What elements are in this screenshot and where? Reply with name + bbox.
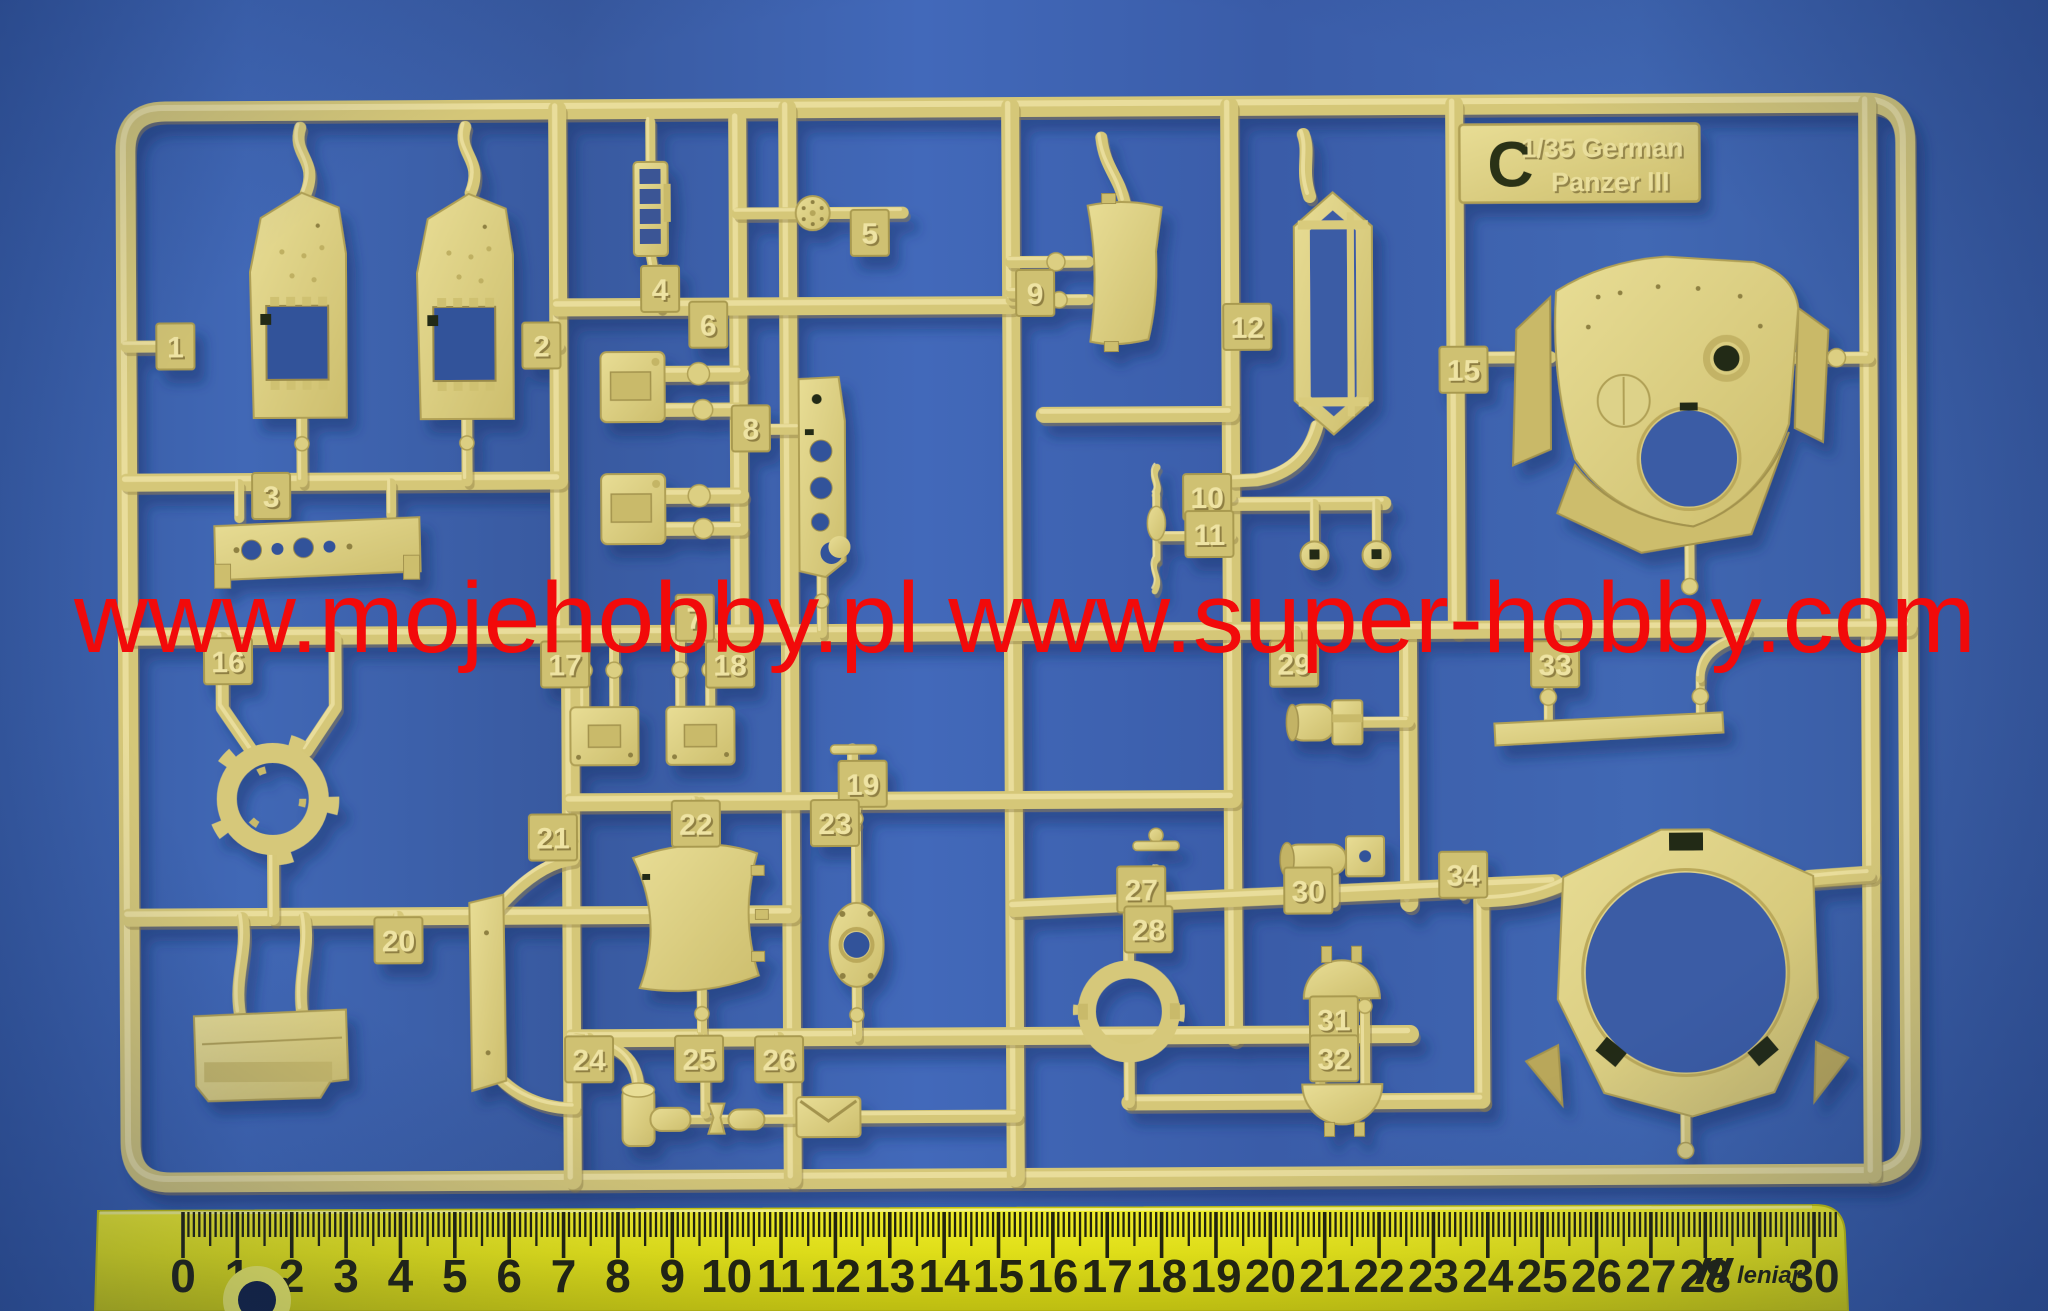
- svg-text:20: 20: [382, 925, 416, 958]
- svg-text:8: 8: [742, 413, 759, 446]
- part-5-disc: [796, 196, 830, 230]
- part-18-box: [666, 707, 734, 765]
- part-12-frame: [1294, 192, 1373, 434]
- part-tag-11: 1111: [1185, 511, 1233, 557]
- part-7-plate: [799, 377, 851, 577]
- svg-text:11: 11: [757, 1250, 806, 1302]
- svg-text:5: 5: [861, 218, 878, 251]
- svg-text:19: 19: [846, 769, 880, 802]
- svg-text:19: 19: [1190, 1250, 1241, 1302]
- part-21-bracket: [469, 895, 506, 1091]
- svg-text:24: 24: [1462, 1250, 1514, 1302]
- svg-text:24: 24: [572, 1044, 606, 1077]
- svg-text:10: 10: [701, 1250, 752, 1302]
- svg-text:6: 6: [496, 1250, 522, 1302]
- svg-text:3: 3: [263, 481, 280, 514]
- svg-text:5: 5: [442, 1250, 468, 1302]
- part-22-shield: [633, 844, 769, 991]
- svg-text:15: 15: [1447, 355, 1481, 388]
- svg-text:8: 8: [605, 1250, 631, 1302]
- svg-text:23: 23: [1408, 1250, 1459, 1302]
- part-29-cylinder: [1286, 700, 1362, 744]
- svg-text:14: 14: [919, 1250, 971, 1302]
- part-tag-1: 11: [156, 323, 194, 369]
- part-23-mount: [829, 903, 883, 987]
- part-17-box: [570, 707, 638, 765]
- part-tag-2: 22: [522, 322, 560, 368]
- svg-text:15: 15: [973, 1250, 1024, 1302]
- part-tag-28: 2828: [1124, 906, 1172, 952]
- part-fender-right: [417, 194, 514, 419]
- svg-text:27: 27: [1124, 874, 1158, 907]
- part-tag-15: 1515: [1439, 347, 1487, 393]
- svg-text:4: 4: [652, 274, 669, 307]
- svg-text:7: 7: [551, 1250, 577, 1302]
- kit-label-line1: 1/35 German: [1521, 133, 1683, 164]
- svg-text:16: 16: [1027, 1250, 1078, 1302]
- part-tag-21: 2121: [529, 814, 577, 860]
- part-tag-9: 99: [1016, 270, 1054, 316]
- part-tag-8: 88: [732, 405, 770, 451]
- part-tag-23: 2323: [811, 800, 859, 846]
- part-tag-5: 55: [851, 210, 889, 256]
- part-20-base: [194, 1010, 348, 1102]
- svg-text:9: 9: [1027, 278, 1044, 311]
- part-tag-34: 3434: [1439, 852, 1487, 898]
- svg-text:18: 18: [1136, 1250, 1187, 1302]
- svg-text:26: 26: [1571, 1250, 1622, 1302]
- svg-text:20: 20: [1245, 1250, 1296, 1302]
- part-tag-4: 44: [641, 266, 679, 312]
- part-9-curved-plate: [1088, 193, 1163, 351]
- part-6-box: [600, 352, 664, 422]
- svg-text:22: 22: [1353, 1250, 1404, 1302]
- part-tag-6: 66: [689, 302, 727, 348]
- svg-text:9: 9: [660, 1250, 686, 1302]
- part-tag-24: 2424: [565, 1036, 613, 1082]
- sprue-photo: C 1/35 German 1/35 German Panzer III Pan…: [0, 0, 2048, 1311]
- svg-text:11: 11: [1193, 519, 1225, 552]
- svg-text:31: 31: [1317, 1004, 1351, 1037]
- part-fender-left: [250, 193, 347, 418]
- svg-text:34: 34: [1446, 860, 1480, 893]
- part-10-11-antenna: [1147, 506, 1165, 540]
- part-tag-32: 3232: [1310, 1035, 1358, 1081]
- svg-text:23: 23: [818, 808, 852, 841]
- svg-text:21: 21: [1299, 1250, 1350, 1302]
- svg-text:25: 25: [1517, 1250, 1568, 1302]
- svg-text:6: 6: [700, 310, 717, 343]
- svg-text:2: 2: [533, 330, 550, 363]
- part-tag-25: 2525: [675, 1036, 723, 1082]
- photo-canvas: C 1/35 German 1/35 German Panzer III Pan…: [0, 0, 2048, 1311]
- part-24-cylinder: [622, 1083, 654, 1146]
- part-tag-20: 2020: [374, 917, 422, 963]
- svg-text:22: 22: [679, 809, 713, 842]
- watermark-text: www.mojehobby.pl www.super-hobby.com: [73, 562, 1976, 674]
- part-tag-22: 2222: [672, 801, 720, 847]
- sprue-id-tag: C 1/35 German 1/35 German Panzer III Pan…: [1459, 123, 1699, 202]
- svg-text:1: 1: [167, 331, 184, 364]
- part-8-box: [601, 474, 665, 544]
- part-tag-26: 2626: [755, 1036, 803, 1082]
- svg-text:12: 12: [1231, 312, 1265, 345]
- ruler-brand-text: leniar: [1737, 1262, 1803, 1289]
- ruler: 01cm234567891011121314151617181920212223…: [95, 1205, 1848, 1311]
- part-26-box: [796, 1097, 860, 1137]
- svg-text:30: 30: [1291, 875, 1325, 908]
- part-tag-12: 1212: [1223, 304, 1271, 350]
- svg-text:17: 17: [1082, 1250, 1133, 1302]
- svg-text:28: 28: [1132, 914, 1166, 947]
- kit-label-line2: Panzer III: [1551, 167, 1670, 198]
- svg-text:21: 21: [536, 822, 570, 855]
- svg-text:0: 0: [170, 1250, 196, 1302]
- svg-text:27: 27: [1625, 1250, 1676, 1302]
- svg-text:32: 32: [1317, 1043, 1351, 1076]
- svg-text:12: 12: [810, 1250, 861, 1302]
- part-tag-3: 33: [252, 473, 290, 519]
- part-4-ladder: [633, 162, 670, 256]
- svg-text:25: 25: [682, 1044, 716, 1077]
- part-tag-30: 3030: [1284, 867, 1332, 913]
- svg-text:4: 4: [388, 1250, 414, 1302]
- svg-text:26: 26: [762, 1044, 796, 1077]
- svg-text:13: 13: [864, 1250, 915, 1302]
- svg-text:3: 3: [333, 1250, 359, 1302]
